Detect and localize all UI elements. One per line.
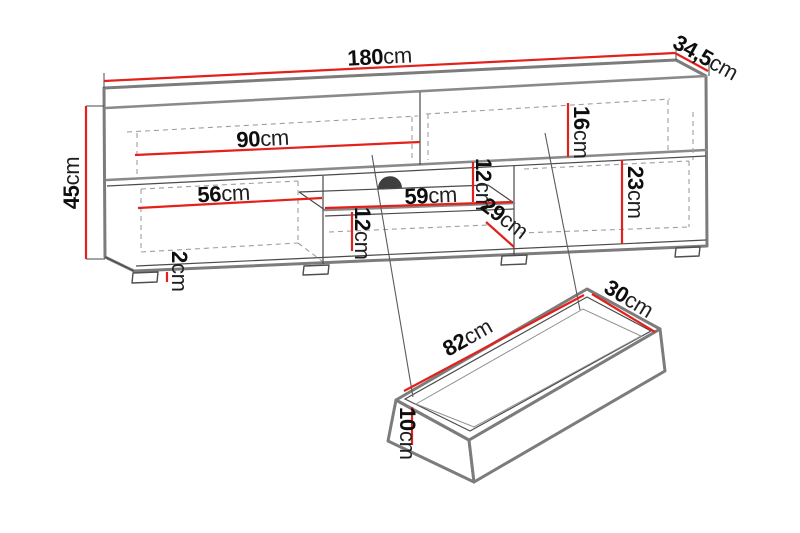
dim-unit: cm bbox=[623, 190, 648, 219]
cabinet-foot bbox=[675, 247, 700, 257]
dim-unit: cm bbox=[167, 263, 192, 292]
diagram-canvas: 180cm 34,5cm 45cm 90cm 56cm 59cm 12cm 12… bbox=[0, 0, 800, 533]
dim-value: 56 bbox=[197, 181, 222, 207]
dim-value: 90 bbox=[236, 126, 261, 152]
dim-label-right-compartment-height: 23cm bbox=[623, 166, 648, 219]
drawer bbox=[388, 289, 665, 482]
cabinet-foot bbox=[303, 265, 329, 275]
dim-unit: cm bbox=[395, 431, 420, 460]
dim-label-left-flap-width: 90cm bbox=[236, 125, 290, 153]
dim-value: 16 bbox=[569, 106, 594, 130]
dim-unit: cm bbox=[59, 157, 84, 186]
dim-value: 23 bbox=[623, 166, 648, 190]
dim-value: 2 bbox=[167, 251, 192, 263]
dim-value: 12 bbox=[350, 207, 375, 231]
dim-label-total-height: 45cm bbox=[59, 157, 84, 210]
dim-label-total-width: 180cm bbox=[347, 42, 413, 70]
dim-value: 45 bbox=[59, 185, 84, 209]
dim-label-niche-lower-height: 12cm bbox=[350, 207, 375, 260]
dim-unit: cm bbox=[428, 182, 458, 208]
dim-label-drawer-height: 10cm bbox=[395, 407, 420, 460]
cabinet-foot bbox=[132, 272, 158, 283]
dim-label-foot-height: 2cm bbox=[167, 251, 192, 292]
dim-unit: cm bbox=[260, 125, 290, 151]
furniture-dimension-diagram: 180cm 34,5cm 45cm 90cm 56cm 59cm 12cm 12… bbox=[0, 0, 800, 533]
dim-unit: cm bbox=[569, 130, 594, 159]
dim-value: 10 bbox=[395, 407, 420, 431]
cabinet bbox=[104, 60, 707, 283]
dim-label-left-compartment-width: 56cm bbox=[197, 180, 251, 208]
dim-value: 12 bbox=[471, 158, 496, 182]
dim-label-niche-width: 59cm bbox=[404, 182, 458, 209]
dim-unit: cm bbox=[382, 42, 412, 68]
cabinet-foot bbox=[501, 255, 527, 265]
dim-value: 180 bbox=[347, 44, 384, 71]
dim-label-right-top-clearance: 16cm bbox=[569, 106, 594, 159]
dim-value: 59 bbox=[404, 183, 429, 209]
dim-unit: cm bbox=[350, 231, 375, 260]
dim-unit: cm bbox=[221, 180, 251, 206]
